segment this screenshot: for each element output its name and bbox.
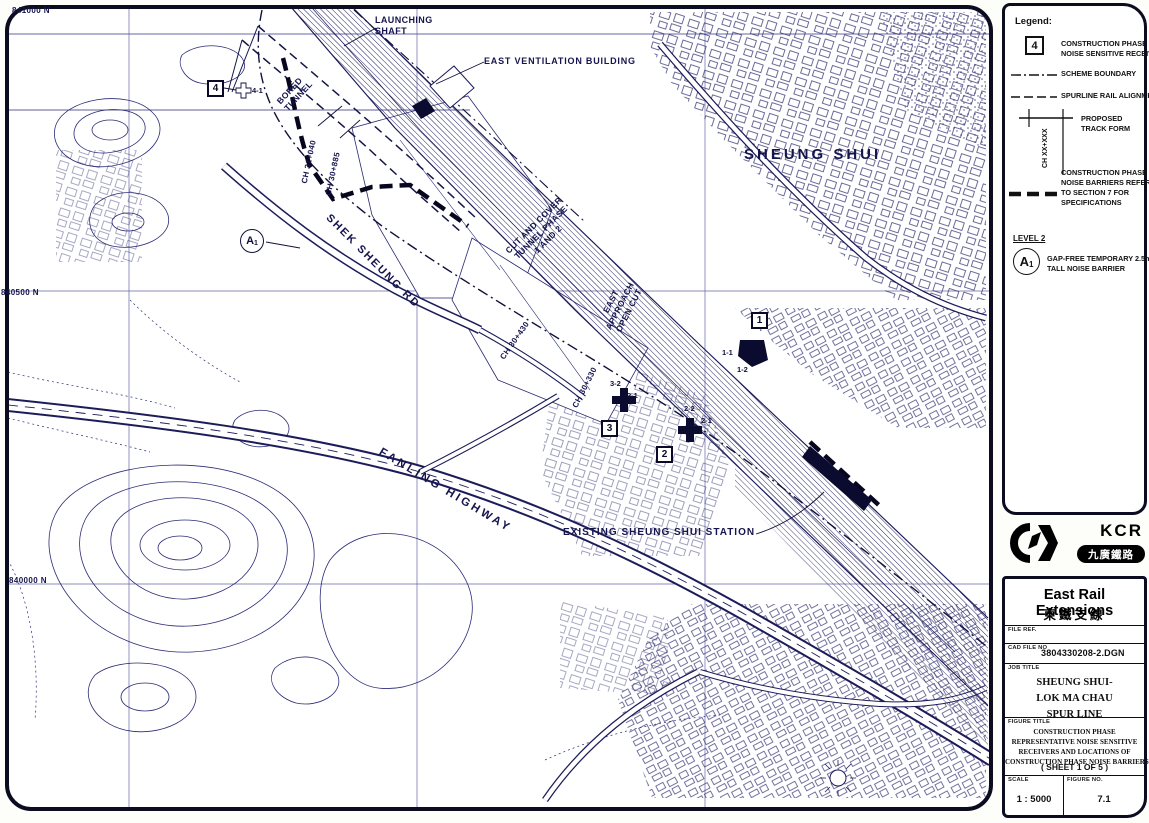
- legend-a1-text: GAP-FREE TEMPORARY 2.5m TALL NOISE BARRI…: [1047, 254, 1149, 274]
- scale-row: SCALE 1 : 5000 FIGURE NO. 7.1: [1005, 775, 1144, 816]
- grid-label-840000n: 840000 N: [9, 576, 47, 585]
- sheet-number: ( SHEET 1 OF 5 ): [1005, 762, 1144, 772]
- scale-value: 1 : 5000: [1005, 794, 1063, 805]
- file-ref-label: FILE REF.: [1008, 627, 1037, 633]
- unit-label-2-1: 2-1: [701, 416, 712, 425]
- cad-file-row: CAD FILE NO 3804330208-2.DGN: [1005, 643, 1144, 664]
- cad-file-value: 3804330208-2.DGN: [1041, 648, 1125, 658]
- label-existing-sheung-shui-station: EXISTING SHEUNG SHUI STATION: [563, 527, 755, 539]
- unit-label-3-2: 3-2: [610, 379, 621, 388]
- legend-receiver-text: CONSTRUCTION PHASE NOISE SENSITIVE RECEI…: [1061, 39, 1149, 59]
- figure-title-row: FIGURE TITLE CONSTRUCTION PHASE REPRESEN…: [1005, 717, 1144, 776]
- legend-title: Legend:: [1015, 16, 1052, 27]
- a1-sub: 1: [254, 240, 258, 247]
- scale-label: SCALE: [1008, 777, 1029, 783]
- legend-a1-symbol: A1: [1013, 248, 1040, 275]
- job-title-value: SHEUNG SHUI- LOK MA CHAU SPUR LINE: [1005, 675, 1144, 722]
- kcr-logo-block: KCR 九廣鐵路: [1002, 518, 1147, 574]
- unit-label-3-1: 3-1: [627, 391, 638, 400]
- legend-track-form-text: PROPOSED TRACK FORM: [1081, 114, 1130, 134]
- legend-a1-main: A: [1020, 254, 1029, 269]
- figure-no-value: 7.1: [1064, 794, 1144, 805]
- drawing-sheet: 841000 N 840500 N 840000 N LAUNCHING SHA…: [0, 0, 1149, 823]
- scale-cell: SCALE 1 : 5000: [1005, 776, 1064, 816]
- grid-label-840500n: 840500 N: [1, 288, 39, 297]
- legend-spurline-text: SPURLINE RAIL ALIGNMENT: [1061, 91, 1149, 101]
- legend-barrier-text: CONSTRUCTION PHASE NOISE BARRIERS REFER …: [1061, 168, 1149, 207]
- figure-no-cell: FIGURE NO. 7.1: [1064, 776, 1144, 816]
- unit-label-1-2: 1-2: [737, 365, 748, 374]
- noise-barrier-symbol: [1009, 190, 1059, 198]
- receiver-4-marker: 4: [207, 80, 224, 97]
- legend-level2-heading: LEVEL 2: [1013, 234, 1045, 243]
- unit-label-2-2: 2-2: [684, 404, 695, 413]
- receiver-1-marker: 1: [751, 312, 768, 329]
- scheme-boundary-symbol: [1011, 72, 1057, 78]
- legend-receiver-symbol: 4: [1025, 36, 1044, 55]
- track-form-chainage: CH XX+XXX: [1041, 129, 1050, 169]
- figure-title-label: FIGURE TITLE: [1008, 719, 1050, 725]
- receiver-2-marker: 2: [656, 446, 673, 463]
- receiver-3-marker: 3: [601, 420, 618, 437]
- label-launching-shaft: LAUNCHING SHAFT: [375, 15, 433, 36]
- map-linework: [0, 0, 998, 823]
- figure-no-label: FIGURE NO.: [1067, 777, 1103, 783]
- job-title-label: JOB TITLE: [1008, 665, 1039, 671]
- unit-label-1-1: 1-1: [722, 348, 733, 357]
- a1-main: A: [246, 235, 254, 247]
- kcr-chinese-badge: 九廣鐵路: [1077, 545, 1145, 563]
- title-block: East Rail Extensions 東鐵支線 FILE REF. CAD …: [1002, 576, 1147, 818]
- label-east-ventilation-building: EAST VENTILATION BUILDING: [484, 56, 636, 67]
- title-row: East Rail Extensions 東鐵支線: [1005, 579, 1144, 625]
- kcr-logo-icon: [1006, 522, 1058, 564]
- label-sheung-shui: SHEUNG SHUI: [744, 146, 881, 164]
- right-panel: Legend: 4 CONSTRUCTION PHASE NOISE SENSI…: [1000, 0, 1149, 823]
- job-title-row: JOB TITLE SHEUNG SHUI- LOK MA CHAU SPUR …: [1005, 663, 1144, 718]
- unit-label-4-1: 4-1: [252, 86, 263, 95]
- barrier-a1-marker: A1: [240, 229, 264, 253]
- project-title-zh: 東鐵支線: [1005, 604, 1144, 623]
- file-ref-row: FILE REF.: [1005, 625, 1144, 644]
- spurline-symbol: [1011, 94, 1057, 100]
- kcr-wordmark: KCR: [1100, 521, 1143, 541]
- grid-label-841000n: 841000 N: [12, 6, 50, 15]
- legend-scheme-boundary-text: SCHEME BOUNDARY: [1061, 69, 1136, 79]
- legend-panel: Legend: 4 CONSTRUCTION PHASE NOISE SENSI…: [1002, 3, 1147, 515]
- legend-a1-sub: 1: [1029, 260, 1033, 269]
